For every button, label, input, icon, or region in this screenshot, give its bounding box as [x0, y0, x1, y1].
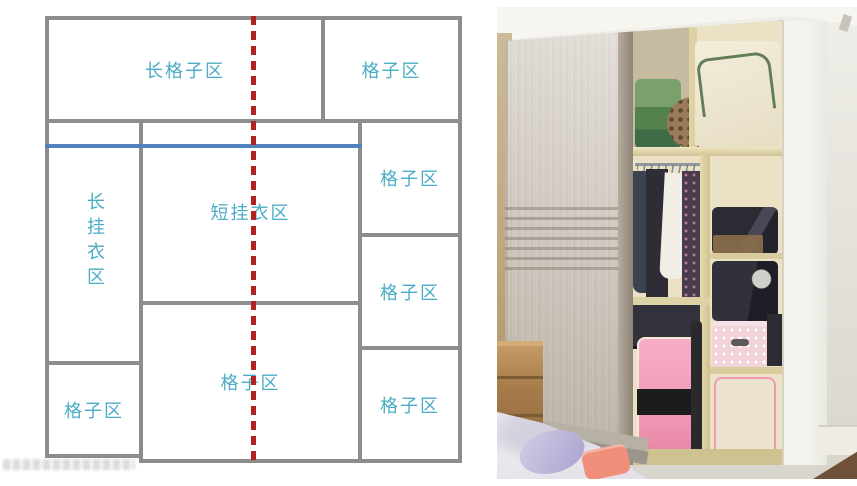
small-brown-box — [713, 235, 763, 255]
wardrobe-side-panel — [782, 15, 827, 465]
right-shelf-upper — [710, 253, 782, 259]
zone-label: 格子区 — [64, 397, 124, 423]
zone-shelf-top-right: 格子区 — [321, 16, 462, 123]
zone-label: 格子区 — [380, 165, 440, 191]
wardrobe-interior — [633, 21, 782, 465]
watermark — [3, 459, 135, 470]
zone-label: 格子区 — [380, 279, 440, 305]
zone-label: 格子区 — [380, 392, 440, 418]
dark-clothes-edge — [767, 314, 782, 366]
zone-shelf-bottom-left: 格子区 — [45, 361, 143, 458]
hanging-clothes-floral — [682, 171, 700, 303]
hanging-rod-line — [45, 144, 362, 148]
right-shelf-lower — [710, 367, 782, 374]
zone-label: 长挂衣区 — [81, 192, 107, 292]
door-frame — [618, 17, 633, 465]
wardrobe-cabinet — [505, 15, 827, 465]
zone-shelf-right-upper: 格子区 — [358, 119, 462, 237]
polka-dot-box-handle — [731, 339, 749, 346]
zone-shelf-right-lower: 格子区 — [358, 346, 462, 463]
zone-label: 长格子区 — [145, 57, 225, 83]
zone-long-hang-left: 长挂衣区 — [45, 119, 143, 365]
folded-clothes-pile-lower — [712, 261, 778, 321]
dark-strap — [691, 321, 702, 453]
middle-shelf — [633, 297, 710, 305]
page: 长格子区 格子区 长挂衣区 格子区 短挂衣区 格子区 格子区 格子区 格子区 — [0, 0, 857, 486]
door-rib-grooves — [505, 207, 622, 271]
center-dashed-line — [251, 16, 256, 466]
nightstand-drawer-line — [497, 376, 543, 379]
zone-shelf-right-middle: 格子区 — [358, 233, 462, 350]
storage-box-trim — [696, 51, 777, 118]
zone-label: 格子区 — [362, 57, 422, 83]
wardrobe-photo — [497, 7, 857, 479]
interior-base — [633, 449, 782, 465]
zone-long-shelf-top: 长格子区 — [45, 16, 325, 123]
baseboard — [819, 425, 857, 455]
